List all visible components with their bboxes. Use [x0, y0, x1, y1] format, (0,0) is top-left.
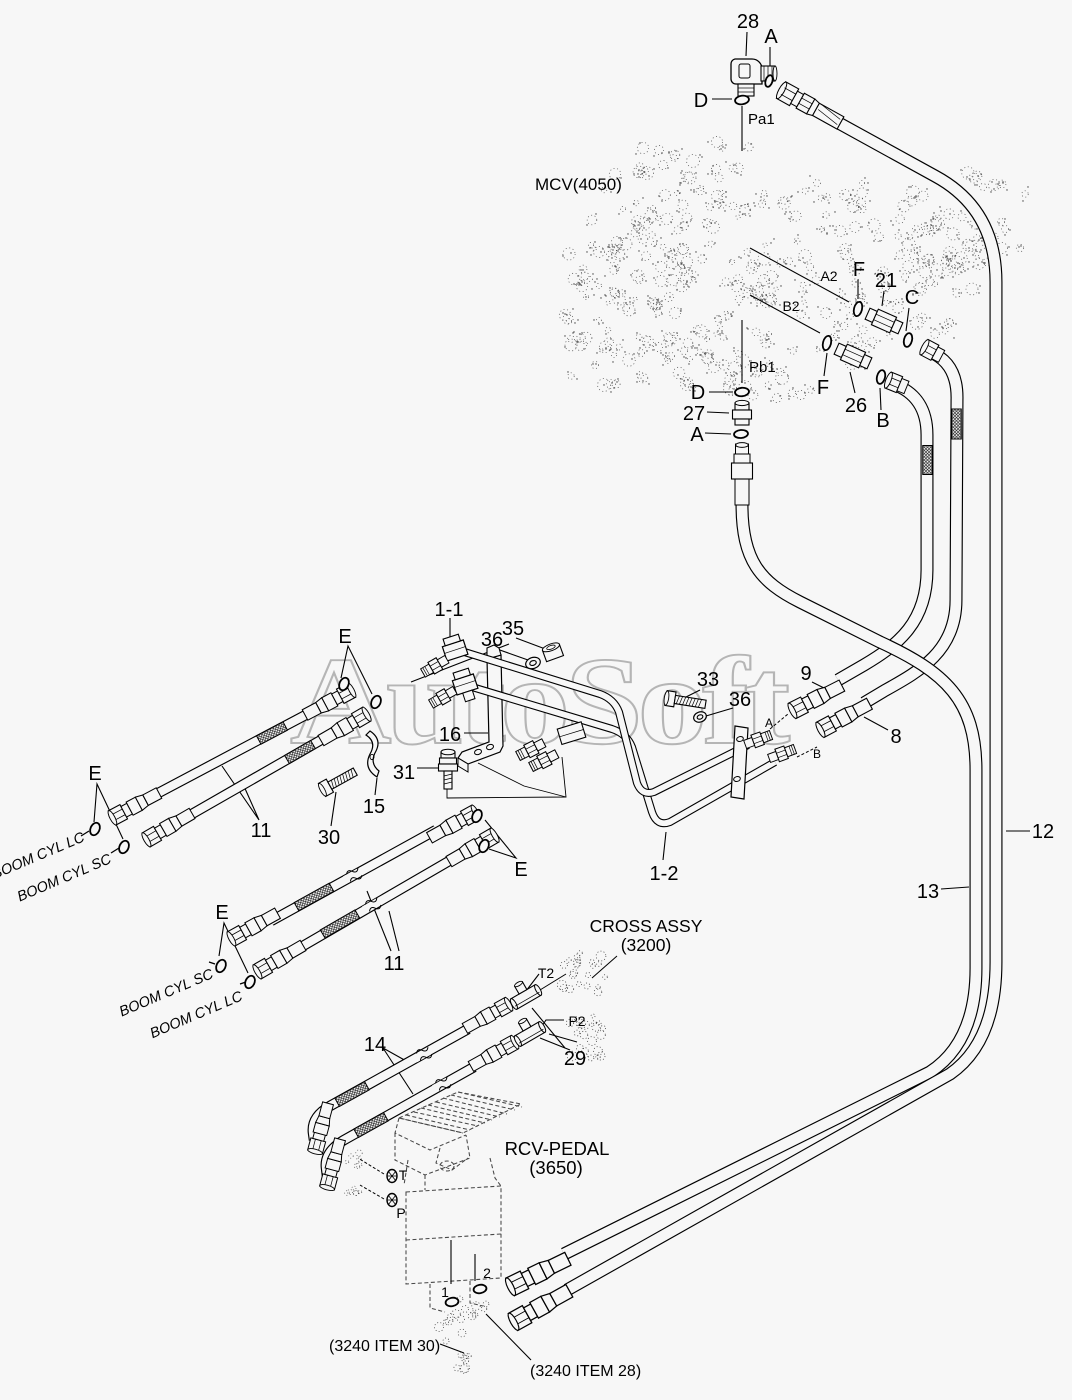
svg-text:2: 2	[483, 1265, 491, 1281]
svg-text:A2: A2	[820, 268, 837, 284]
svg-text:MCV(4050): MCV(4050)	[535, 175, 622, 194]
svg-text:E: E	[88, 763, 101, 785]
svg-text:B: B	[876, 410, 889, 432]
svg-text:T: T	[399, 1167, 408, 1183]
svg-text:RCV-PEDAL: RCV-PEDAL	[505, 1138, 610, 1159]
svg-text:14: 14	[364, 1034, 386, 1056]
svg-text:28: 28	[737, 11, 759, 33]
svg-text:12: 12	[1032, 821, 1054, 843]
svg-text:P: P	[396, 1205, 405, 1221]
svg-text:9: 9	[800, 663, 811, 685]
svg-text:Pa1: Pa1	[748, 111, 775, 128]
svg-text:11: 11	[384, 953, 405, 975]
svg-text:13: 13	[917, 881, 939, 903]
svg-text:1-1: 1-1	[435, 599, 464, 621]
svg-text:E: E	[338, 626, 351, 648]
svg-text:1: 1	[441, 1284, 449, 1300]
svg-text:16: 16	[439, 724, 461, 746]
svg-text:35: 35	[502, 618, 524, 640]
svg-text:31: 31	[393, 762, 415, 784]
svg-text:21: 21	[875, 270, 897, 292]
svg-text:F: F	[817, 377, 829, 399]
svg-text:(3240 ITEM 28): (3240 ITEM 28)	[530, 1363, 641, 1380]
svg-text:B: B	[813, 747, 821, 761]
svg-text:27: 27	[683, 403, 705, 425]
svg-text:A: A	[764, 26, 778, 48]
svg-text:A: A	[690, 424, 704, 446]
svg-text:CROSS ASSY: CROSS ASSY	[590, 916, 703, 936]
svg-text:26: 26	[845, 395, 867, 417]
svg-text:30: 30	[318, 827, 340, 849]
svg-text:(3240 ITEM 30): (3240 ITEM 30)	[329, 1338, 440, 1355]
svg-text:P2: P2	[568, 1013, 585, 1029]
svg-text:11: 11	[251, 820, 272, 842]
svg-text:33: 33	[697, 669, 719, 691]
svg-text:A: A	[765, 716, 773, 730]
svg-text:8: 8	[890, 726, 901, 748]
svg-text:E: E	[215, 902, 228, 924]
svg-text:F: F	[853, 259, 865, 281]
svg-text:36: 36	[481, 629, 503, 651]
svg-text:C: C	[905, 287, 919, 309]
svg-text:B2: B2	[782, 298, 799, 314]
svg-text:36: 36	[729, 689, 751, 711]
svg-text:29: 29	[564, 1048, 586, 1070]
svg-text:E: E	[514, 859, 527, 881]
svg-text:Pb1: Pb1	[749, 359, 776, 376]
svg-text:D: D	[691, 382, 705, 404]
svg-text:1-2: 1-2	[650, 863, 679, 885]
svg-text:(3200): (3200)	[621, 935, 672, 955]
svg-text:15: 15	[363, 796, 385, 818]
svg-text:D: D	[694, 90, 708, 112]
svg-text:T2: T2	[538, 965, 555, 981]
svg-text:(3650): (3650)	[529, 1157, 582, 1178]
